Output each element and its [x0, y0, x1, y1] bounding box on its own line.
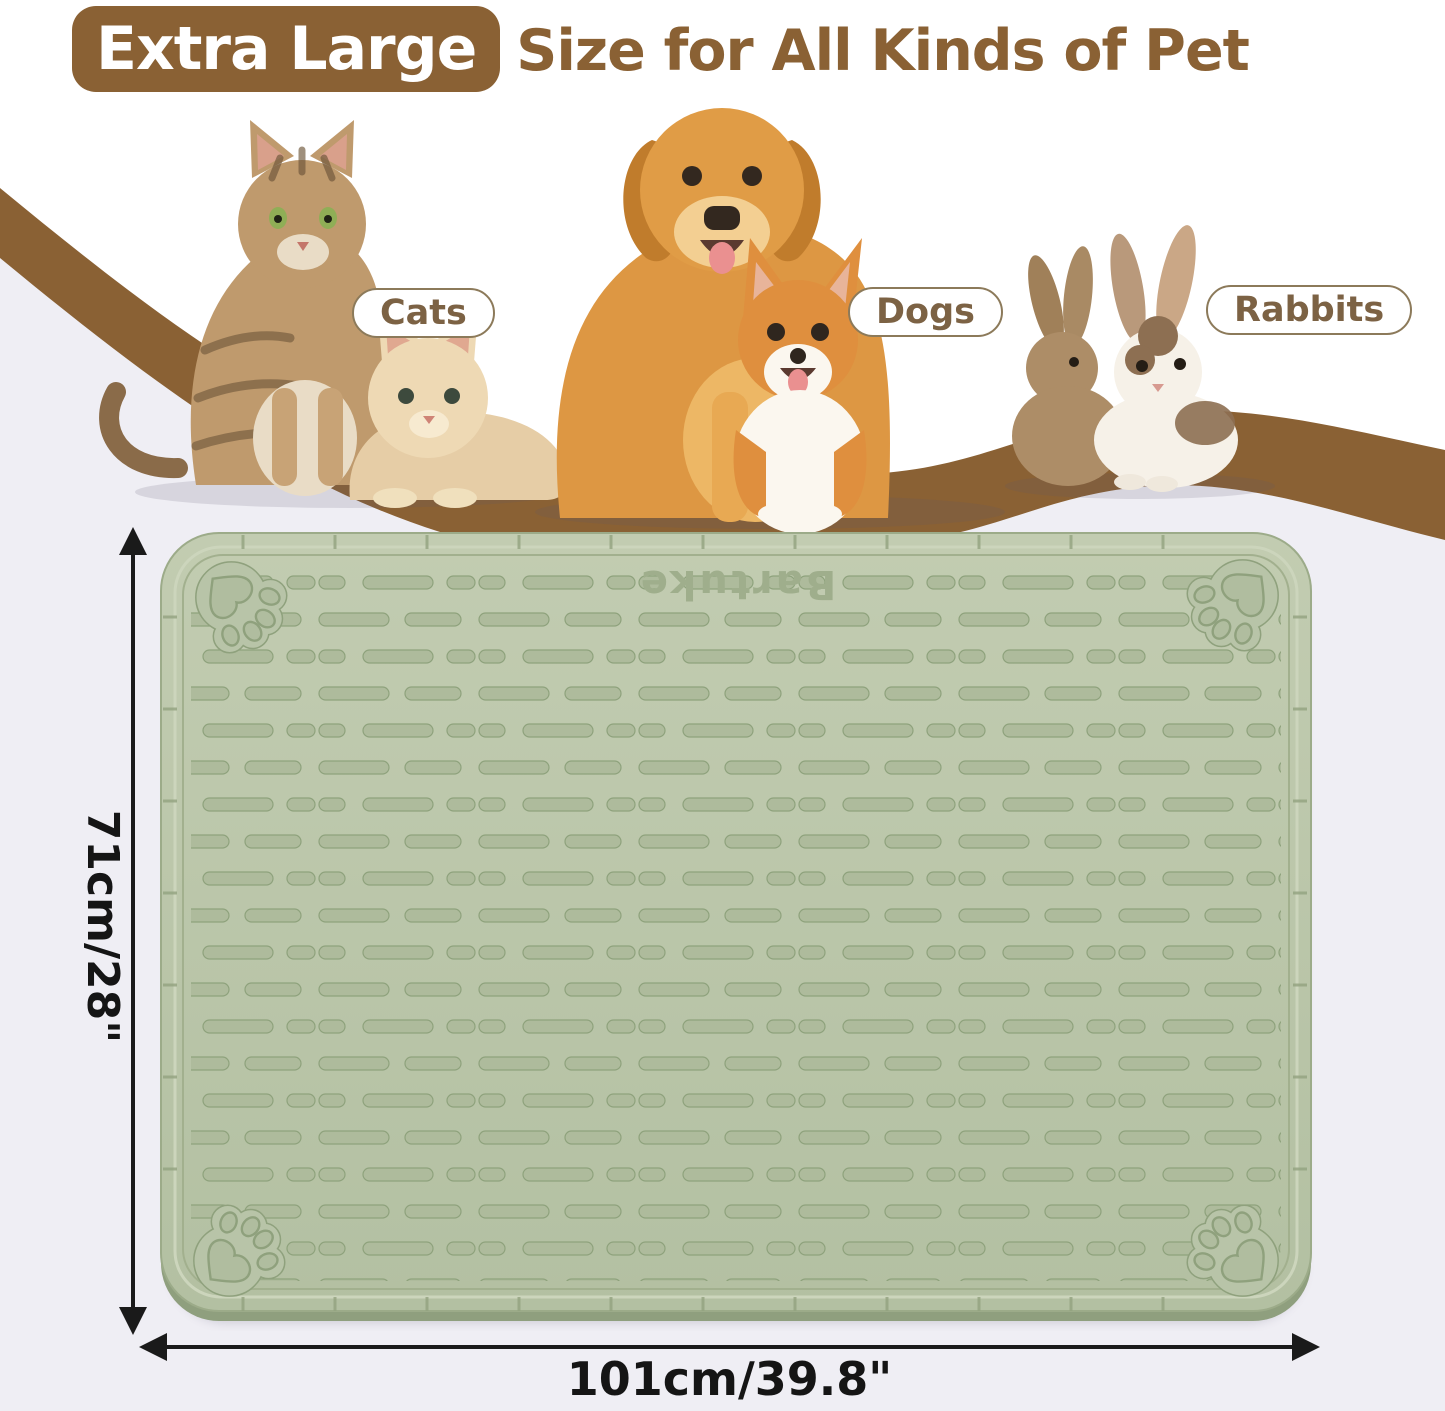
height-dimension: 71cm/28" — [58, 531, 148, 1321]
title-badge: Extra Large — [72, 6, 500, 92]
cats-label-pill: Cats — [352, 288, 495, 338]
pet-mat: Bartuke — [157, 531, 1315, 1331]
rabbits-photo — [1005, 222, 1275, 499]
title-badge-label: Extra Large — [96, 14, 476, 84]
title-headline: Size for All Kinds of Pet — [516, 14, 1249, 84]
width-dimension-label: 101cm/39.8" — [137, 1352, 1322, 1406]
page-title: Extra Large Size for All Kinds of Pet — [72, 6, 1249, 92]
height-dimension-label: 71cm/28" — [78, 809, 129, 1042]
mat-texture — [191, 563, 1281, 1281]
product-image: Extra Large Size for All Kinds of Pet Ca… — [0, 0, 1445, 1411]
dogs-label-pill: Dogs — [848, 287, 1003, 337]
mat-brand-embossed: Bartuke — [638, 561, 836, 607]
rabbits-label-pill: Rabbits — [1206, 285, 1412, 335]
cats-photo — [109, 120, 568, 508]
